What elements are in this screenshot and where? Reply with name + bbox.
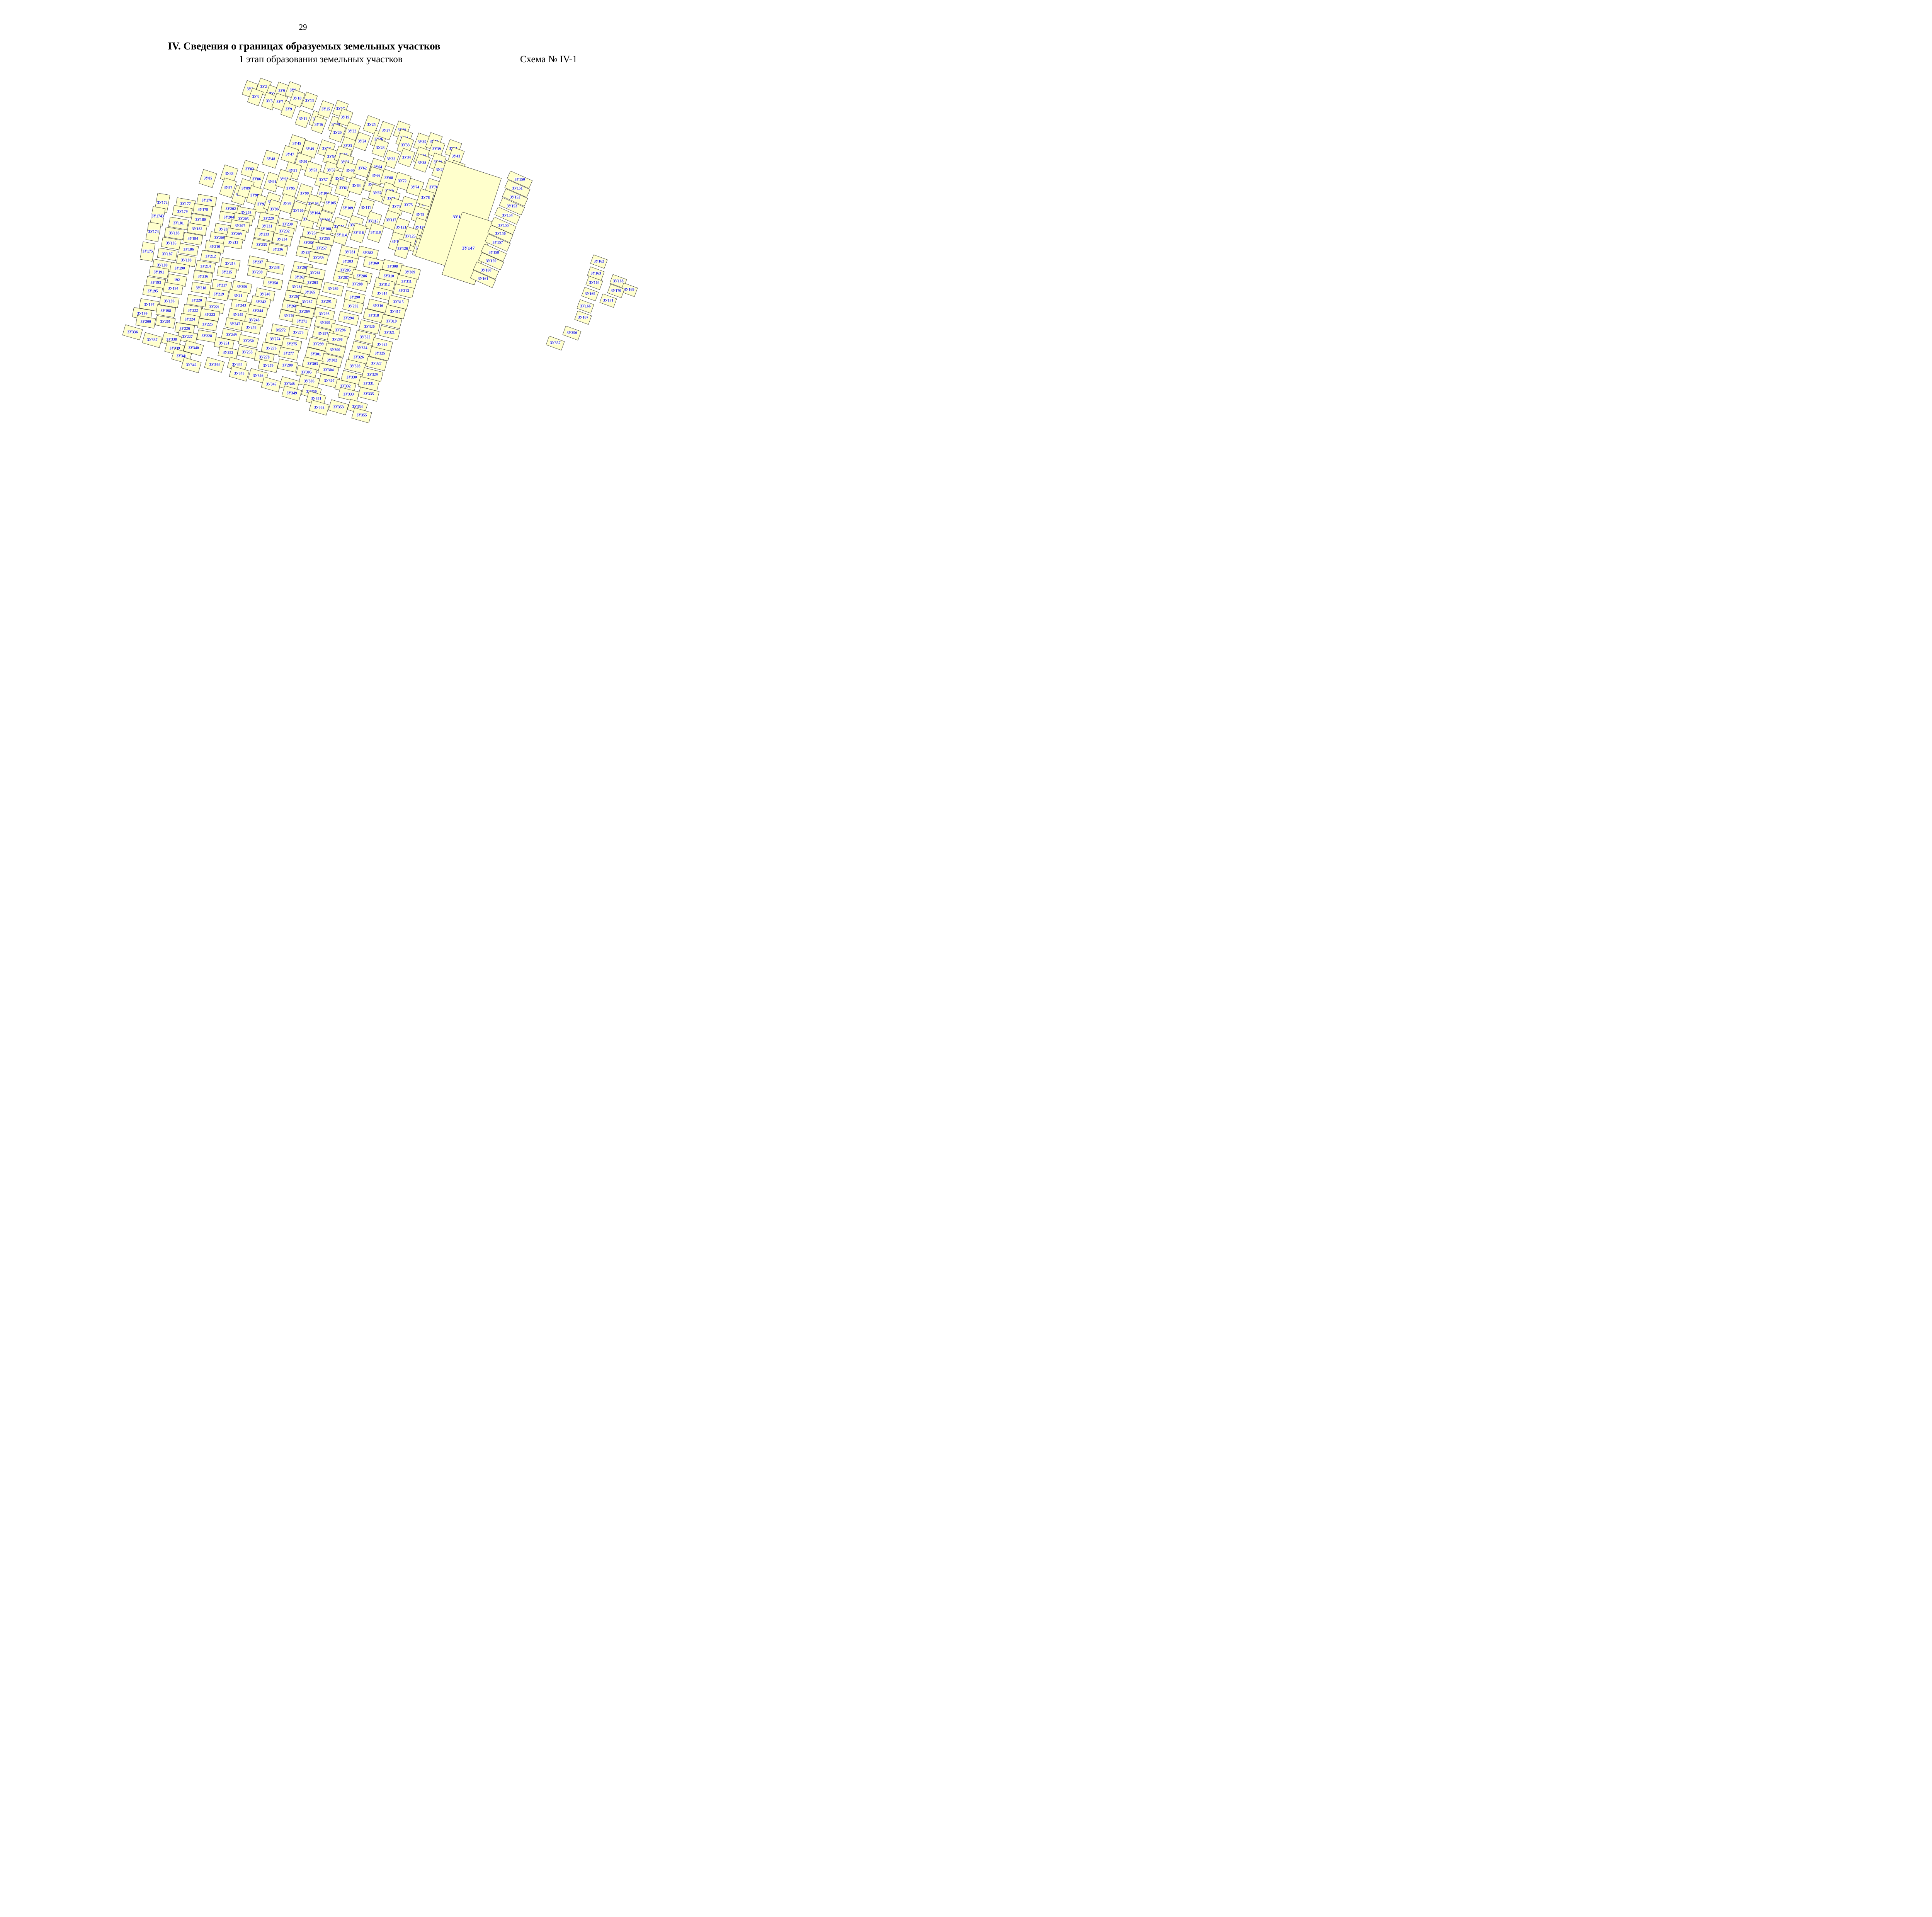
- parcel-label: ЗУ67: [373, 191, 381, 195]
- parcel-label: ЗУ214: [200, 264, 211, 269]
- parcel-label: ЗУ240: [260, 292, 270, 296]
- parcel-label: ЗУ353: [333, 405, 344, 409]
- parcel-label: ЗУ204: [223, 215, 234, 219]
- parcel-ЗУ353: ЗУ353: [328, 400, 349, 415]
- parcel-ЗУ349: ЗУ349: [282, 386, 302, 401]
- parcel-ЗУ175: ЗУ175: [140, 242, 155, 262]
- parcel-label: ЗУ313: [398, 289, 409, 293]
- parcel-ЗУ358: ЗУ358: [263, 277, 283, 290]
- parcel-label: ЗУ278: [259, 355, 269, 359]
- parcel-label: ЗУ342: [186, 363, 196, 367]
- parcel-ЗУ356: ЗУ356: [563, 326, 581, 340]
- parcel-ЗУ187: ЗУ187: [157, 248, 177, 261]
- parcel-label: ЗУ236: [272, 247, 283, 252]
- parcel-label: ЗУ164: [589, 281, 599, 285]
- parcel-label: ЗУ191: [153, 270, 164, 274]
- parcel-label: ЗУ294: [343, 316, 354, 320]
- parcel-label: ЗУ242: [255, 300, 266, 304]
- parcel-label: ЗУ9: [285, 107, 292, 111]
- parcel-label: ЗУ228: [201, 334, 212, 338]
- parcel-ЗУ200: ЗУ200: [136, 316, 156, 328]
- parcel-label: ЗУ21: [234, 294, 242, 298]
- parcel-label: ЗУ125: [405, 234, 415, 238]
- parcel-label: ЗУ349: [286, 391, 297, 395]
- parcel-label: ЗУ289: [328, 287, 338, 291]
- parcel-label: ЗУ359: [236, 285, 247, 289]
- parcel-label: ЗУ195: [147, 289, 158, 293]
- parcel-label: ЗУ104: [310, 211, 320, 215]
- parcel-label: ЗУ280: [282, 363, 293, 367]
- parcel-ЗУ291: ЗУ291: [316, 294, 337, 309]
- parcel-label: ЗУ10: [293, 96, 301, 100]
- parcel-label: ЗУ158: [488, 250, 499, 255]
- parcel-label: ЗУ25: [367, 122, 376, 127]
- parcel-label: ЗУ222: [187, 308, 198, 313]
- parcel-ЗУ165: ЗУ165: [582, 287, 599, 301]
- parcel-label: ЗУ19: [341, 115, 349, 119]
- parcel-label: ЗУ243: [235, 303, 246, 308]
- parcel-label: ЗУ302: [327, 358, 337, 362]
- parcel-ЗУ201: ЗУ201: [155, 316, 175, 328]
- parcel-label: ЗУ266: [289, 294, 299, 299]
- parcel-ЗУ273: ЗУ273: [288, 326, 308, 339]
- parcel-ЗУ279: ЗУ279: [258, 359, 278, 373]
- parcel-label: ЗУ82: [245, 167, 254, 171]
- parcel-label: ЗУ263: [307, 281, 318, 285]
- parcel-label: ЗУ202: [225, 207, 236, 211]
- parcel-label: ЗУ176: [201, 198, 212, 202]
- parcel-label: ЗУ32: [387, 157, 395, 161]
- parcel-label: ЗУ165: [585, 292, 595, 296]
- parcel-label: ЗУ63: [352, 184, 361, 188]
- parcel-label: ЗУ201: [160, 320, 170, 324]
- parcel-label: ЗУ121: [396, 225, 406, 230]
- parcel-label: ЗУ293: [319, 312, 329, 316]
- parcel-label: ЗУ277: [283, 351, 294, 356]
- parcel-label: ЗУ251: [219, 341, 229, 345]
- parcel-label: ЗУ105: [325, 201, 336, 205]
- parcel-ЗУ336: ЗУ336: [122, 325, 143, 340]
- parcel-label: ЗУ246: [249, 318, 259, 322]
- parcel-label: ЗУ265: [304, 290, 315, 294]
- parcel-label: ЗУ57: [319, 178, 328, 182]
- parcel-label: ЗУ23: [344, 144, 352, 148]
- parcel-label: ЗУ16: [315, 122, 323, 127]
- parcel-label: ЗУ33: [401, 143, 410, 147]
- parcel-label: ЗУ352: [314, 405, 324, 410]
- parcel-label: ЗУ279: [263, 364, 273, 368]
- parcel-label: ЗУ326: [353, 355, 364, 359]
- parcel-label: ЗУ87: [224, 185, 232, 190]
- parcel-label: ЗУ68: [384, 176, 393, 180]
- parcel-ЗУ352: ЗУ352: [309, 400, 329, 415]
- parcel-label: ЗУ35: [418, 140, 426, 144]
- parcel-label: ЗУ283: [342, 259, 353, 264]
- parcel-label: ЗУ167: [578, 315, 588, 320]
- parcel-label: ЗУ75: [404, 203, 413, 207]
- parcel-ЗУ218: ЗУ218: [191, 282, 211, 295]
- parcel-label: ЗУ197: [144, 303, 154, 307]
- parcel-label: ЗУ187: [162, 252, 172, 256]
- parcel-label: ЗУ271: [296, 319, 307, 323]
- parcel-ЗУ280: ЗУ280: [277, 359, 298, 372]
- parcel-label: ЗУ114: [337, 233, 347, 237]
- parcel-label: ЗУ78: [421, 196, 430, 200]
- parcel-label: ЗУ308: [387, 264, 398, 269]
- parcel-label: ЗУ118: [371, 230, 381, 235]
- parcel-label: ЗУ303: [307, 362, 318, 366]
- parcel-label: ЗУ147: [462, 245, 475, 251]
- parcel-label: ЗУ314: [377, 291, 387, 296]
- parcel-label: ЗУ220: [191, 298, 202, 303]
- parcel-label: ЗУ161: [478, 277, 488, 281]
- parcel-label: ЗУ45: [293, 141, 301, 146]
- parcel-label: ЗУ38: [418, 161, 426, 165]
- parcel-label: ЗУ216: [197, 274, 208, 279]
- parcel-label: ЗУ227: [182, 335, 192, 339]
- parcel-label: ЗУ218: [196, 286, 206, 290]
- parcel-label: ЗУ300: [330, 348, 340, 352]
- parcel-ЗУ337: ЗУ337: [142, 332, 162, 348]
- parcel-ЗУ162: ЗУ162: [590, 255, 607, 269]
- parcel-label: ЗУ47: [286, 152, 294, 156]
- parcel-ЗУ171: ЗУ171: [600, 294, 617, 308]
- parcel-label: ЗУ321: [384, 330, 395, 335]
- parcel-label: ЗУ320: [364, 325, 374, 329]
- parcel-label: ЗУ324: [357, 346, 367, 350]
- parcel-label: ЗУ198: [160, 309, 171, 313]
- parcel-label: ЗУ275: [286, 342, 297, 346]
- parcel-label: ЗУ328: [350, 364, 360, 368]
- parcel-label: ЗУ330: [346, 375, 357, 379]
- parcel-label: ЗУ219: [213, 292, 224, 296]
- parcel-label: ЗУ257: [316, 246, 327, 250]
- parcel-label: ЗУ126: [397, 247, 408, 251]
- parcel-label: ЗУ316: [372, 304, 383, 308]
- parcel-label: ЗУ340: [188, 346, 199, 350]
- parcel-label: ЗУ274: [270, 337, 280, 341]
- parcel-label: ЗУ49: [306, 147, 314, 151]
- parcel-label: ЗУ169: [624, 287, 634, 292]
- parcel-label: ЗУ109: [342, 206, 353, 210]
- parcel-label: ЗУ215: [221, 270, 232, 274]
- parcel-label: ЗУ194: [168, 286, 178, 291]
- parcel-label: ЗУ208: [214, 236, 224, 240]
- parcel-label: ЗУ264: [292, 285, 302, 289]
- parcel-label: ЗУ96: [270, 207, 279, 211]
- parcel-label: ЗУ74: [411, 185, 419, 189]
- parcel-label: ЗУ309: [405, 270, 415, 274]
- parcel-label: ЗУ327: [371, 361, 381, 366]
- parcel-ЗУ294: ЗУ294: [338, 311, 359, 325]
- parcel-label: ЗУ50: [299, 160, 307, 164]
- parcel-label: ЗУ296: [335, 328, 345, 332]
- parcel-label: ЗУ66: [372, 173, 380, 178]
- parcel-label: ЗУ61: [339, 186, 348, 190]
- parcel-label: 192: [174, 278, 180, 282]
- parcel-label: ЗУ304: [323, 368, 333, 372]
- parcel-label: ЗУ357: [550, 341, 560, 345]
- parcel-label: ЗУ210: [209, 245, 220, 249]
- parcel-label: ЗУ177: [180, 202, 190, 206]
- parcel-label: ЗУ267: [302, 300, 312, 304]
- parcel-ЗУ228: ЗУ228: [197, 330, 217, 343]
- parcel-ЗУ360: ЗУ360: [363, 256, 384, 270]
- parcel-label: ЗУ317: [390, 310, 400, 314]
- parcel-label: ЗУ156: [495, 231, 505, 236]
- parcel-label: ЗУ34: [402, 155, 411, 160]
- parcel-label: ЗУ329: [367, 373, 378, 377]
- parcel-label: ЗУ39: [432, 147, 441, 151]
- parcel-label: ЗУ226: [179, 327, 190, 331]
- parcel-label: ЗУ153: [507, 204, 517, 208]
- parcel-scheme-map: ЗУ1ЗУ2ЗУ3ЗУ4ЗУ5ЗУ6ЗУ7ЗУ8ЗУ9ЗУ10ЗУ11ЗУ13З…: [0, 0, 678, 479]
- parcel-label: ЗУ116: [354, 231, 364, 235]
- parcel-label: ЗУ172: [157, 201, 167, 205]
- parcel-label: ЗУ235: [256, 243, 267, 247]
- parcel-label: ЗУ151: [512, 186, 522, 191]
- parcel-label: ЗУ89: [241, 186, 250, 191]
- parcel-label: ЗУ270: [284, 314, 294, 318]
- parcel-label: ЗУ333: [343, 392, 354, 396]
- parcel-label: М272: [276, 328, 286, 332]
- parcel-label: ЗУ99: [300, 191, 309, 196]
- parcel-label: ЗУ306: [304, 379, 314, 383]
- parcel-label: ЗУ348: [284, 382, 294, 386]
- parcel-label: ЗУ174: [148, 230, 158, 234]
- parcel-label: ЗУ163: [590, 271, 601, 276]
- parcel-label: ЗУ20: [333, 131, 342, 135]
- parcel-label: ЗУ182: [192, 227, 202, 231]
- parcel-label: ЗУ181: [173, 221, 184, 225]
- parcel-label: ЗУ318: [368, 313, 379, 318]
- parcel-label: ЗУ22: [348, 129, 356, 133]
- parcel-label: ЗУ188: [181, 258, 191, 262]
- parcel-label: ЗУ360: [368, 261, 379, 265]
- parcel-ЗУ109: ЗУ109: [339, 198, 356, 218]
- parcel-ЗУ48: ЗУ48: [262, 150, 280, 168]
- parcel-label: ЗУ262: [294, 275, 305, 279]
- parcel-label: ЗУ355: [356, 413, 367, 417]
- parcel-label: ЗУ159: [486, 259, 496, 263]
- parcel-label: ЗУ217: [216, 283, 227, 287]
- parcel-label: ЗУ213: [225, 262, 235, 266]
- parcel-label: ЗУ358: [267, 281, 278, 285]
- parcel-label: ЗУ286: [356, 274, 367, 278]
- parcel-label: ЗУ185: [166, 241, 176, 245]
- parcel-label: ЗУ285: [340, 268, 350, 272]
- parcel-label: ЗУ337: [147, 338, 157, 342]
- parcel-label: ЗУ72: [398, 179, 406, 183]
- parcel-label: ЗУ237: [252, 260, 263, 264]
- parcel-label: ЗУ255: [319, 236, 330, 241]
- parcel-ЗУ63: ЗУ63: [347, 177, 365, 195]
- parcel-label: ЗУ155: [498, 223, 509, 228]
- parcel-label: ЗУ98: [283, 201, 291, 206]
- parcel-label: ЗУ15: [321, 107, 330, 111]
- parcel-label: ЗУ209: [231, 232, 241, 236]
- parcel-label: ЗУ91: [268, 180, 276, 184]
- parcel-label: ЗУ48: [267, 157, 275, 161]
- parcel-label: ЗУ319: [386, 319, 396, 323]
- parcel-label: ЗУ27: [382, 128, 390, 133]
- parcel-label: ЗУ28: [376, 146, 384, 150]
- parcel-ЗУ357: ЗУ357: [546, 336, 565, 350]
- parcel-label: ЗУ245: [233, 313, 243, 317]
- parcel-label: ЗУ322: [360, 335, 370, 339]
- parcel-label: ЗУ184: [187, 236, 198, 241]
- parcel-label: ЗУ325: [374, 351, 385, 356]
- parcel-label: ЗУ292: [348, 304, 358, 308]
- parcel-label: ЗУ268: [286, 304, 297, 308]
- parcel-label: ЗУ85: [204, 176, 212, 180]
- parcel-label: ЗУ196: [164, 299, 174, 303]
- parcel-ЗУ345: ЗУ345: [229, 366, 249, 381]
- parcel-label: ЗУ239: [252, 270, 262, 274]
- parcel-label: ЗУ299: [313, 342, 323, 346]
- parcel-label: ЗУ252: [223, 350, 233, 355]
- parcel-label: ЗУ180: [195, 218, 206, 222]
- parcel-label: ЗУ305: [301, 370, 311, 374]
- parcel-label: ЗУ307: [324, 379, 334, 383]
- parcel-label: ЗУ253: [242, 350, 252, 354]
- parcel-label: ЗУ1743: [151, 214, 164, 218]
- parcel-ЗУ85: ЗУ85: [199, 169, 217, 187]
- parcel-label: ЗУ86: [252, 177, 261, 181]
- parcel-label: ЗУ301: [310, 352, 321, 356]
- parcel-label: ЗУ260: [297, 265, 308, 270]
- parcel-label: ЗУ336: [127, 330, 138, 334]
- parcel-label: ЗУ356: [566, 331, 577, 335]
- parcel-label: ЗУ345: [234, 371, 244, 376]
- parcel-label: ЗУ223: [204, 313, 215, 317]
- parcel-label: ЗУ335: [363, 392, 374, 396]
- parcel-label: ЗУ354: [352, 405, 362, 409]
- parcel-label: ЗУ310: [383, 274, 394, 278]
- parcel-label: ЗУ162: [594, 259, 604, 264]
- parcel-label: ЗУ315: [393, 300, 403, 304]
- parcel-label: ЗУ7: [276, 100, 283, 104]
- parcel-label: ЗУ232: [279, 229, 289, 233]
- parcel-label: ЗУ234: [277, 237, 287, 242]
- parcel-ЗУ355: ЗУ355: [352, 408, 372, 423]
- parcel-label: ЗУ5: [266, 99, 272, 103]
- parcel-label: ЗУ295: [320, 321, 330, 325]
- parcel-label: ЗУ207: [235, 224, 245, 228]
- parcel-label: ЗУ282: [362, 251, 373, 255]
- parcel-label: ЗУ171: [603, 298, 613, 303]
- parcel-label: ЗУ343: [209, 362, 219, 367]
- parcel-label: ЗУ170: [611, 289, 621, 293]
- parcel-label: ЗУ178: [197, 208, 208, 212]
- parcel-label: ЗУ311: [401, 279, 412, 284]
- parcel-label: ЗУ189: [157, 263, 167, 267]
- parcel-label: ЗУ179: [177, 209, 187, 214]
- parcel-label: ЗУ297: [318, 332, 328, 336]
- parcel-label: ЗУ73: [392, 204, 401, 209]
- parcel-ЗУ11: ЗУ11: [295, 110, 311, 128]
- parcel-label: ЗУ287: [338, 276, 349, 280]
- parcel-label: ЗУ269: [299, 310, 310, 314]
- parcel-label: ЗУ290: [349, 295, 360, 299]
- parcel-label: ЗУ261: [310, 271, 320, 275]
- parcel-label: ЗУ238: [269, 265, 279, 270]
- parcel-label: ЗУ225: [202, 322, 213, 327]
- parcel-label: ЗУ259: [313, 256, 323, 260]
- parcel-label: ЗУ229: [263, 216, 274, 221]
- parcel-ЗУ174: ЗУ174: [146, 222, 161, 242]
- parcel-label: ЗУ249: [226, 333, 236, 337]
- parcel-label: ЗУ186: [183, 247, 194, 252]
- parcel-ЗУ343: ЗУ343: [204, 357, 224, 373]
- parcel-label: ЗУ166: [580, 304, 590, 308]
- parcel-label: ЗУ205: [238, 217, 248, 221]
- parcel-label: ЗУ200: [140, 320, 151, 324]
- parcel-label: ЗУ43: [452, 154, 460, 158]
- parcel-label: ЗУ60: [346, 168, 354, 173]
- parcel-label: ЗУ24: [358, 139, 366, 143]
- parcel-label: ЗУ256: [303, 241, 314, 245]
- parcel-label: ЗУ199: [137, 311, 147, 316]
- parcel-label: ЗУ6: [278, 88, 285, 93]
- parcel-label: ЗУ53: [309, 168, 317, 172]
- parcel-label: ЗУ298: [332, 337, 342, 342]
- parcel-ЗУ342: ЗУ342: [181, 357, 201, 373]
- parcel-label: ЗУ231: [262, 224, 272, 228]
- parcel-ЗУ238: ЗУ238: [264, 261, 284, 274]
- parcel-label: ЗУ344: [232, 362, 242, 367]
- parcel-label: ЗУ62: [358, 166, 367, 170]
- parcel-label: ЗУ276: [266, 346, 276, 350]
- parcel-label: ЗУ150: [514, 177, 525, 182]
- parcel-label: ЗУ288: [352, 282, 362, 286]
- parcel-label: ЗУ79: [416, 213, 424, 217]
- parcel-ЗУ347: ЗУ347: [261, 377, 281, 392]
- parcel-label: ЗУ273: [293, 330, 303, 335]
- parcel-label: ЗУ221: [209, 305, 219, 309]
- parcel-label: ЗУ154: [502, 213, 512, 218]
- parcel-label: ЗУ230: [282, 222, 293, 226]
- parcel-ЗУ252: ЗУ252: [218, 346, 238, 359]
- parcel-label: ЗУ224: [184, 317, 195, 321]
- parcel-label: ЗУ83: [225, 172, 233, 176]
- parcel-label: ЗУ244: [252, 309, 263, 313]
- document-page: 29 IV. Сведения о границах образуемых зе…: [0, 0, 678, 479]
- parcel-label: ЗУ233: [259, 232, 269, 236]
- parcel-ЗУ181: ЗУ181: [168, 217, 189, 230]
- parcel-label: ЗУ291: [321, 299, 332, 304]
- parcel-label: ЗУ347: [266, 382, 276, 386]
- parcel-label: ЗУ11: [299, 117, 307, 121]
- parcel-label: ЗУ247: [230, 322, 240, 326]
- parcel-label: ЗУ250: [243, 339, 253, 343]
- parcel-label: ЗУ2: [260, 85, 267, 89]
- parcel-label: ЗУ95: [286, 186, 295, 191]
- parcel-label: ЗУ152: [510, 195, 520, 199]
- parcel-label: ЗУ190: [174, 266, 185, 270]
- parcel-label: ЗУ193: [150, 281, 161, 285]
- parcel-label: ЗУ160: [481, 268, 491, 272]
- parcel-label: ЗУ175: [142, 249, 153, 253]
- parcel-label: ЗУ3: [252, 95, 259, 99]
- parcel-label: ЗУ312: [379, 282, 389, 287]
- parcel-label: ЗУ211: [228, 240, 238, 245]
- parcel-ЗУ250: ЗУ250: [238, 335, 259, 348]
- parcel-ЗУ289: ЗУ289: [323, 282, 344, 296]
- parcel-label: ЗУ248: [246, 325, 256, 330]
- parcel-label: ЗУ168: [613, 279, 623, 283]
- parcel-label: ЗУ281: [345, 250, 355, 254]
